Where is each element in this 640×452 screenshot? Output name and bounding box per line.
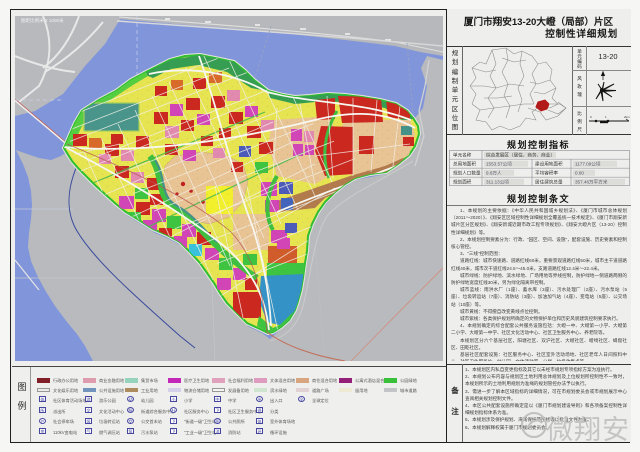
svg-text:1553.57公顷: 1553.57公顷 <box>486 160 512 167</box>
svg-text:357.46万平方米: 357.46万平方米 <box>575 178 608 185</box>
svg-text:平均容积率: 平均容积率 <box>535 169 558 176</box>
svg-text:规划人口数量: 规划人口数量 <box>453 169 481 176</box>
svg-text:总用地面积: 总用地面积 <box>453 160 476 167</box>
svg-text:规划面积: 规划面积 <box>453 178 472 185</box>
svg-text:单元名称: 单元名称 <box>453 151 472 158</box>
svg-text:0: 0 <box>590 115 592 119</box>
svg-text:1177.09公顷: 1177.09公顷 <box>575 160 601 167</box>
svg-text:2km: 2km <box>624 115 630 119</box>
svg-text:居住建筑总量: 居住建筑总量 <box>535 178 563 185</box>
svg-text:图距比例米 X 1000米: 图距比例米 X 1000米 <box>21 17 64 24</box>
svg-text:311.13公顷: 311.13公顷 <box>486 178 509 185</box>
svg-text:综合发展区（居住、商务、商业）: 综合发展区（居住、商务、商业） <box>486 151 555 158</box>
svg-text:建设用地面积: 建设用地面积 <box>535 160 563 167</box>
svg-text:0.60: 0.60 <box>575 170 584 175</box>
svg-text:1: 1 <box>605 115 607 119</box>
